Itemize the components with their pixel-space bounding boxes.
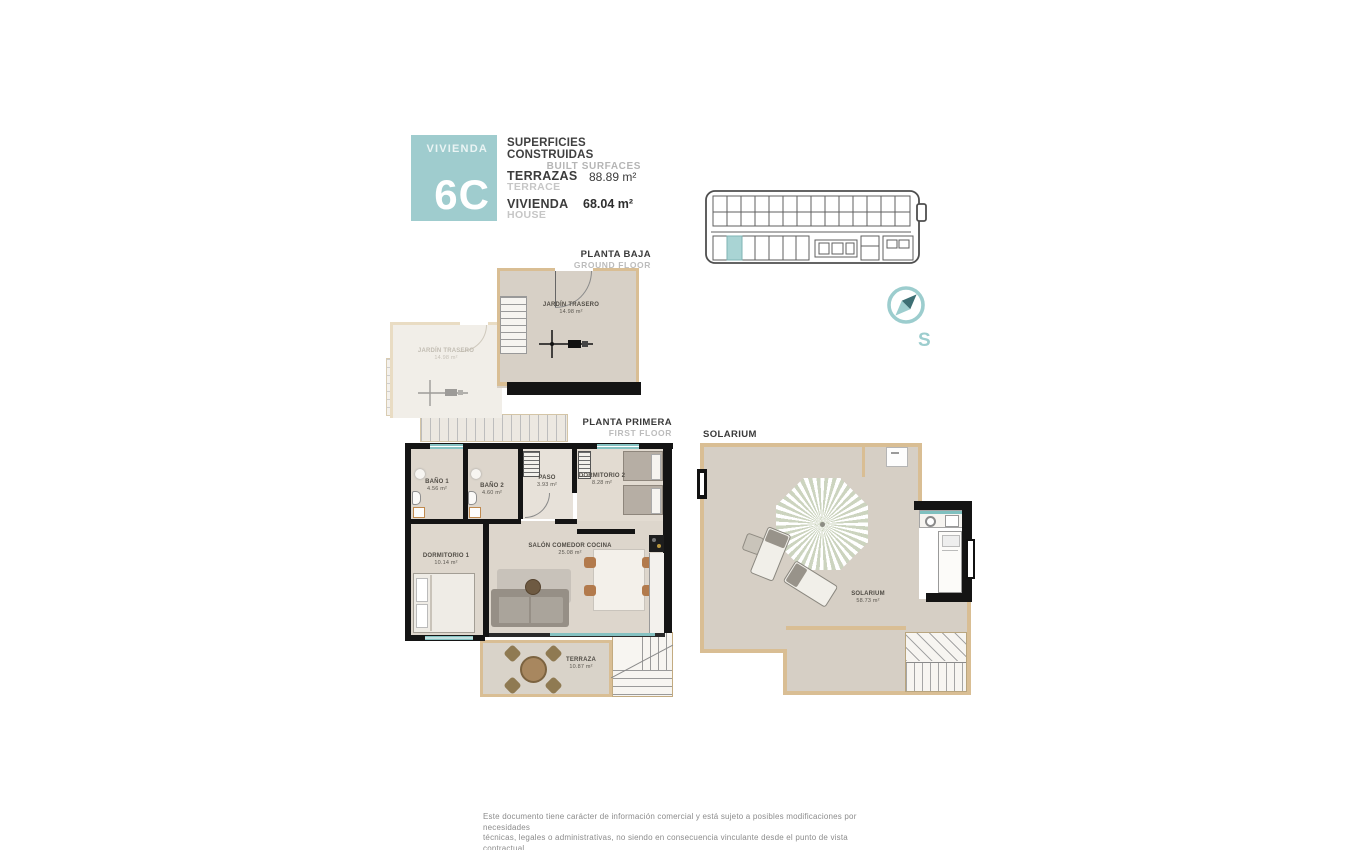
room-name: SOLARIUM — [830, 591, 906, 598]
wall — [663, 443, 672, 633]
appliance-icon — [945, 515, 959, 527]
terrace-label: TERRAZA 10.87 m² — [555, 657, 607, 671]
bed — [623, 485, 663, 515]
room-name: JARDÍN TRASERO — [404, 348, 488, 355]
unit-badge: VIVIENDA 6C — [411, 135, 497, 221]
burner — [657, 544, 661, 548]
solarium-plan: SOLARIUM 58.73 m² — [700, 443, 976, 697]
vivienda-value: 68.04 m² — [583, 197, 633, 211]
entry-marker — [697, 469, 707, 499]
pillow — [416, 578, 428, 602]
window — [966, 539, 975, 579]
garden-label: JARDÍN TRASERO 14.98 m² — [529, 302, 613, 316]
surfaces-title: SUPERFICIES CONSTRUIDAS — [507, 137, 647, 161]
bed-fold-line — [430, 575, 432, 631]
ac-vent — [891, 452, 899, 454]
wall — [507, 382, 641, 395]
terrace-chair — [503, 644, 521, 662]
bathroom-1-label: BAÑO 1 4.56 m² — [413, 479, 461, 493]
cooktop-icon — [649, 535, 664, 552]
wall — [918, 443, 922, 505]
wall — [926, 593, 972, 602]
wall — [405, 519, 521, 524]
coffee-table — [525, 579, 541, 595]
stair-treads — [906, 633, 966, 661]
surfaces-block: SUPERFICIES CONSTRUIDAS BUILT SURFACES — [507, 137, 647, 172]
solarium-label: SOLARIUM 58.73 m² — [830, 591, 906, 605]
room-area: 25.08 m² — [510, 550, 630, 557]
room-area: 4.56 m² — [413, 486, 461, 493]
room-name: DORMITORIO 1 — [413, 553, 479, 560]
chair — [584, 557, 596, 568]
ground-floor-title: PLANTA BAJA — [500, 250, 651, 260]
ceiling-fan-icon — [418, 380, 468, 406]
legal-line-2: técnicas, legales o administrativas, no … — [483, 833, 885, 850]
living-kitchen-label: SALÓN COMEDOR COCINA 25.08 m² — [510, 543, 630, 557]
ac-unit-icon — [886, 447, 908, 467]
wall — [390, 322, 393, 418]
pillow — [651, 454, 661, 480]
room-area: 8.28 m² — [577, 480, 627, 487]
counter-edge — [920, 511, 964, 514]
room-name: DORMITORIO 2 — [577, 473, 627, 480]
sink-icon — [413, 507, 425, 518]
bed — [623, 451, 663, 481]
sink-icon — [925, 516, 936, 527]
sofa-cushion-line — [529, 597, 531, 623]
room-name: BAÑO 2 — [467, 483, 517, 490]
entry-marker-inner — [700, 473, 704, 495]
wall — [555, 519, 577, 524]
room-name: PASO — [523, 475, 571, 482]
terrace-table — [520, 656, 547, 683]
sofa-cushion-line — [497, 597, 499, 623]
kitchen-counter — [649, 553, 664, 633]
dining-table — [593, 549, 645, 611]
fridge-line — [942, 550, 958, 551]
legal-line-1: Este documento tiene carácter de informa… — [483, 812, 885, 833]
stair-landing-line — [906, 662, 966, 663]
fridge-top — [942, 535, 960, 547]
room-name: JARDÍN TRASERO — [529, 302, 613, 309]
fridge-unit — [938, 531, 962, 593]
compass-icon: S — [876, 278, 940, 352]
bed — [413, 573, 475, 633]
terrazas-value: 88.89 m² — [589, 170, 636, 184]
terrace-chair — [544, 676, 562, 694]
wall — [783, 649, 787, 695]
parasol-pole — [820, 522, 825, 527]
adjacent-garden-plan: JARDÍN TRASERO 14.98 m² — [390, 322, 502, 418]
wall — [862, 443, 865, 477]
room-area: 58.73 m² — [830, 598, 906, 605]
window — [430, 444, 464, 449]
hallway-label: PASO 3.93 m² — [523, 475, 571, 489]
ceiling-light-icon — [471, 469, 481, 479]
site-key-plan — [703, 188, 935, 274]
wall — [967, 599, 971, 695]
room-area: 14.98 m² — [404, 355, 488, 362]
room-area: 4.60 m² — [467, 490, 517, 497]
terrace-sublabel: TERRACE — [507, 181, 561, 193]
toilet-icon — [412, 491, 421, 505]
sink-icon — [469, 507, 481, 518]
stair-treads — [906, 663, 966, 691]
compass-south-letter: S — [918, 330, 931, 351]
bedroom-2-label: DORMITORIO 2 8.28 m² — [577, 473, 627, 487]
wall — [463, 443, 468, 519]
radiator-icon — [523, 451, 540, 477]
site-plan-highlighted-unit — [727, 236, 742, 260]
unit-badge-label: VIVIENDA — [417, 143, 488, 155]
wall — [914, 501, 968, 510]
chair — [584, 585, 596, 596]
bedroom-1-label: DORMITORIO 1 10.14 m² — [413, 553, 479, 567]
room-area: 3.93 m² — [523, 482, 571, 489]
outdoor-kitchen-counter — [919, 510, 965, 528]
sliding-door — [550, 633, 655, 636]
wall — [405, 443, 411, 641]
wall — [786, 626, 906, 630]
solarium-stairs — [905, 632, 967, 692]
wall — [636, 268, 639, 388]
wall — [577, 529, 635, 534]
window — [425, 636, 473, 640]
window — [597, 444, 639, 449]
bathroom-2-label: BAÑO 2 4.60 m² — [467, 483, 517, 497]
house-sublabel: HOUSE — [507, 209, 546, 221]
room-name: BAÑO 1 — [413, 479, 461, 486]
adjacent-garden-lower-stairs — [420, 414, 568, 442]
floorplan-sheet: VIVIENDA 6C SUPERFICIES CONSTRUIDAS BUIL… — [0, 0, 1360, 850]
ceiling-light-icon — [415, 469, 425, 479]
solarium-title: SOLARIUM — [703, 430, 757, 440]
garden-stairs — [500, 296, 527, 354]
stair-treads — [613, 670, 672, 696]
legal-disclaimer: Este documento tiene carácter de informa… — [483, 812, 885, 850]
first-floor-plan: BAÑO 1 4.56 m² BAÑO 2 4.60 m² PASO 3.93 … — [405, 443, 673, 643]
unit-badge-number: 6C — [417, 175, 490, 215]
terrace: TERRAZA 10.87 m² — [480, 640, 612, 697]
garden-plan: JARDÍN TRASERO 14.98 m² — [497, 268, 639, 388]
wall — [483, 524, 489, 637]
pillow — [651, 488, 661, 514]
ceiling-fan-icon — [539, 330, 593, 358]
room-area: 14.98 m² — [529, 309, 613, 316]
room-name: TERRAZA — [555, 657, 607, 664]
room-name: SALÓN COMEDOR COCINA — [510, 543, 630, 550]
burner — [652, 538, 656, 542]
room-area: 10.14 m² — [413, 560, 479, 567]
room-area: 10.87 m² — [555, 664, 607, 671]
ground-floor-title-block: PLANTA BAJA GROUND FLOOR — [500, 250, 651, 270]
wall — [700, 649, 787, 653]
adjacent-garden-label: JARDÍN TRASERO 14.98 m² — [404, 348, 488, 362]
terrace-chair — [503, 676, 521, 694]
pillow — [416, 604, 428, 628]
